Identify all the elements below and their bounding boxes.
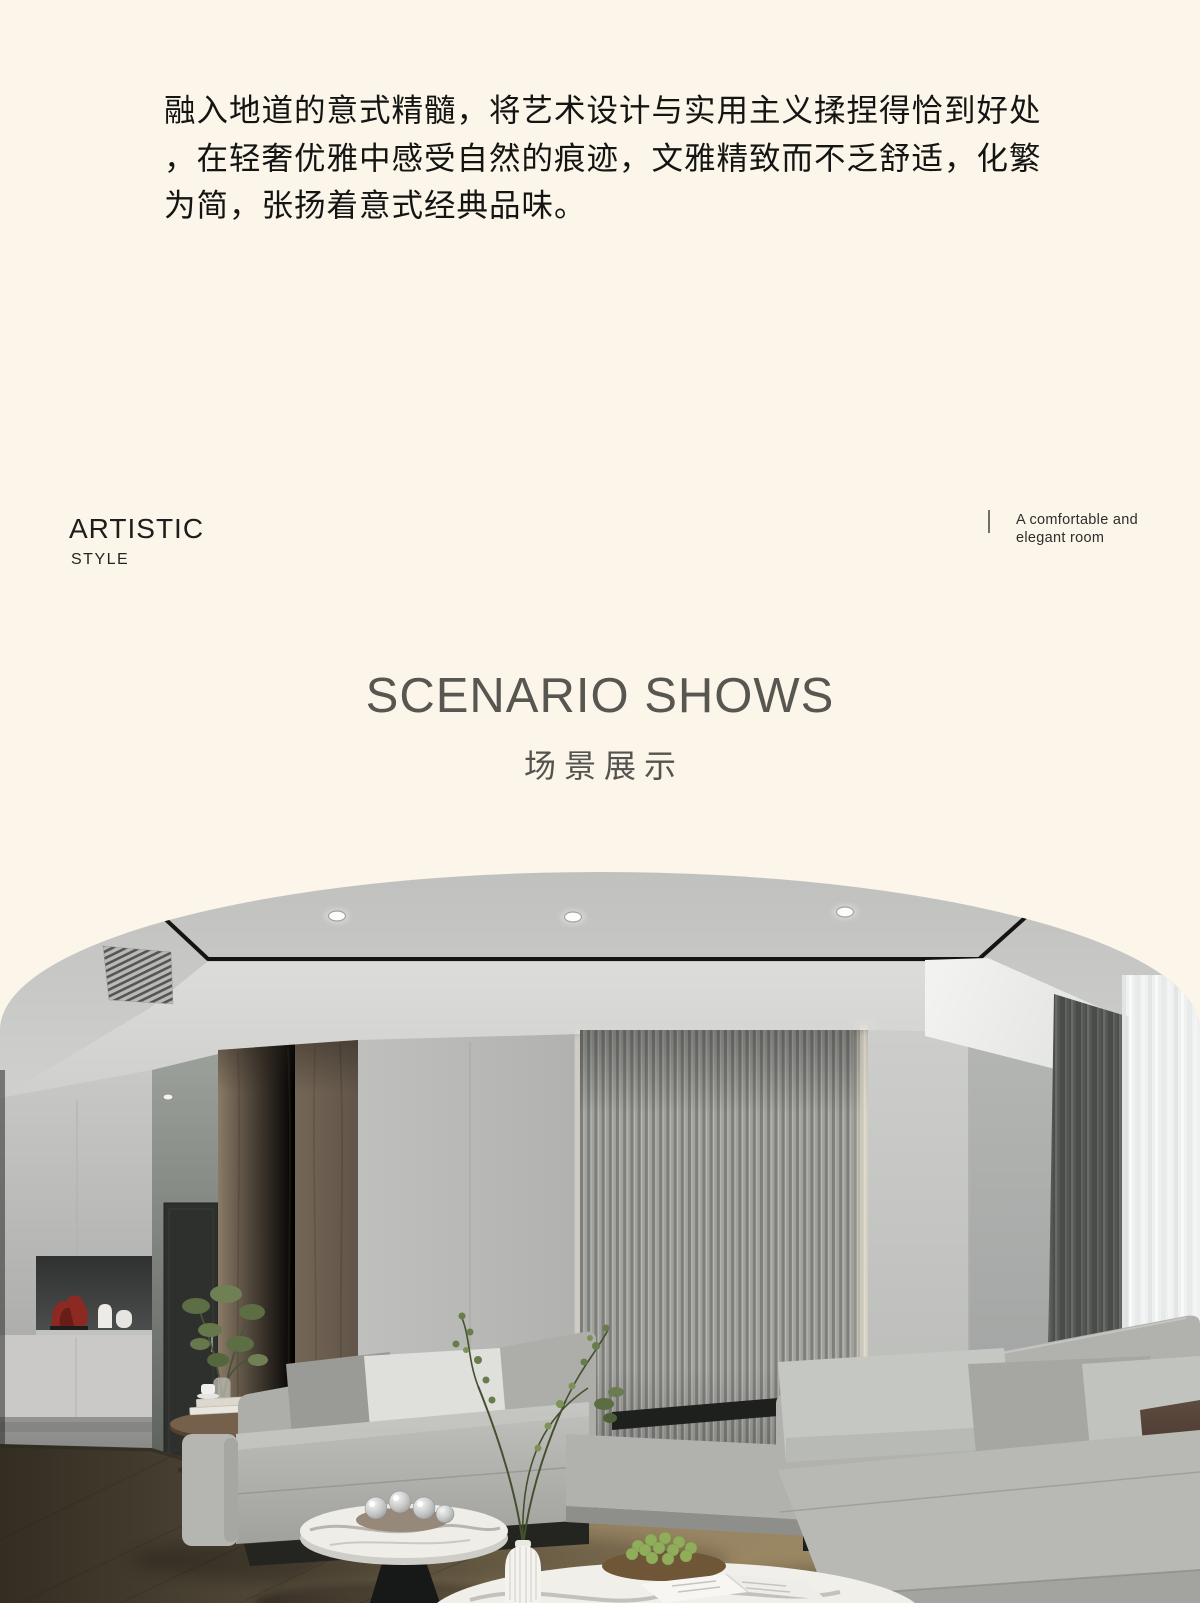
intro-line-1: 融入地道的意式精髓，将艺术设计与实用主义揉捏得恰到好处 xyxy=(164,87,1042,135)
intro-line-3: 为简，张扬着意式经典品味。 xyxy=(164,182,1042,230)
side-note-line1: A comfortable and xyxy=(1016,512,1138,530)
hallway-downlight xyxy=(163,1094,173,1100)
note-divider xyxy=(988,510,990,533)
intro-line-2: ，在轻奢优雅中感受自然的痕迹，文雅精致而不乏舒适，化繁 xyxy=(164,135,1042,183)
side-note: A comfortable and elegant room xyxy=(1016,512,1138,547)
right-sofa xyxy=(776,1316,1200,1603)
white-vase-small xyxy=(116,1310,132,1328)
white-vase xyxy=(98,1304,112,1328)
chaise xyxy=(566,1387,806,1536)
ceiling-vent-grille xyxy=(103,946,173,1004)
intro-paragraph: 融入地道的意式精髓，将艺术设计与实用主义揉捏得恰到好处 ，在轻奢优雅中感受自然的… xyxy=(164,87,1042,230)
led-strip-right xyxy=(861,1028,867,1413)
section-title-zh: 场景展示 xyxy=(0,741,1200,787)
scenario-photo xyxy=(0,865,1200,1603)
side-note-line2: elegant room xyxy=(1016,530,1138,548)
section-title-en: SCENARIO SHOWS xyxy=(0,668,1200,724)
cup xyxy=(201,1384,215,1394)
artistic-title: ARTISTIC xyxy=(69,513,204,545)
artistic-subtitle: STYLE xyxy=(71,551,129,569)
